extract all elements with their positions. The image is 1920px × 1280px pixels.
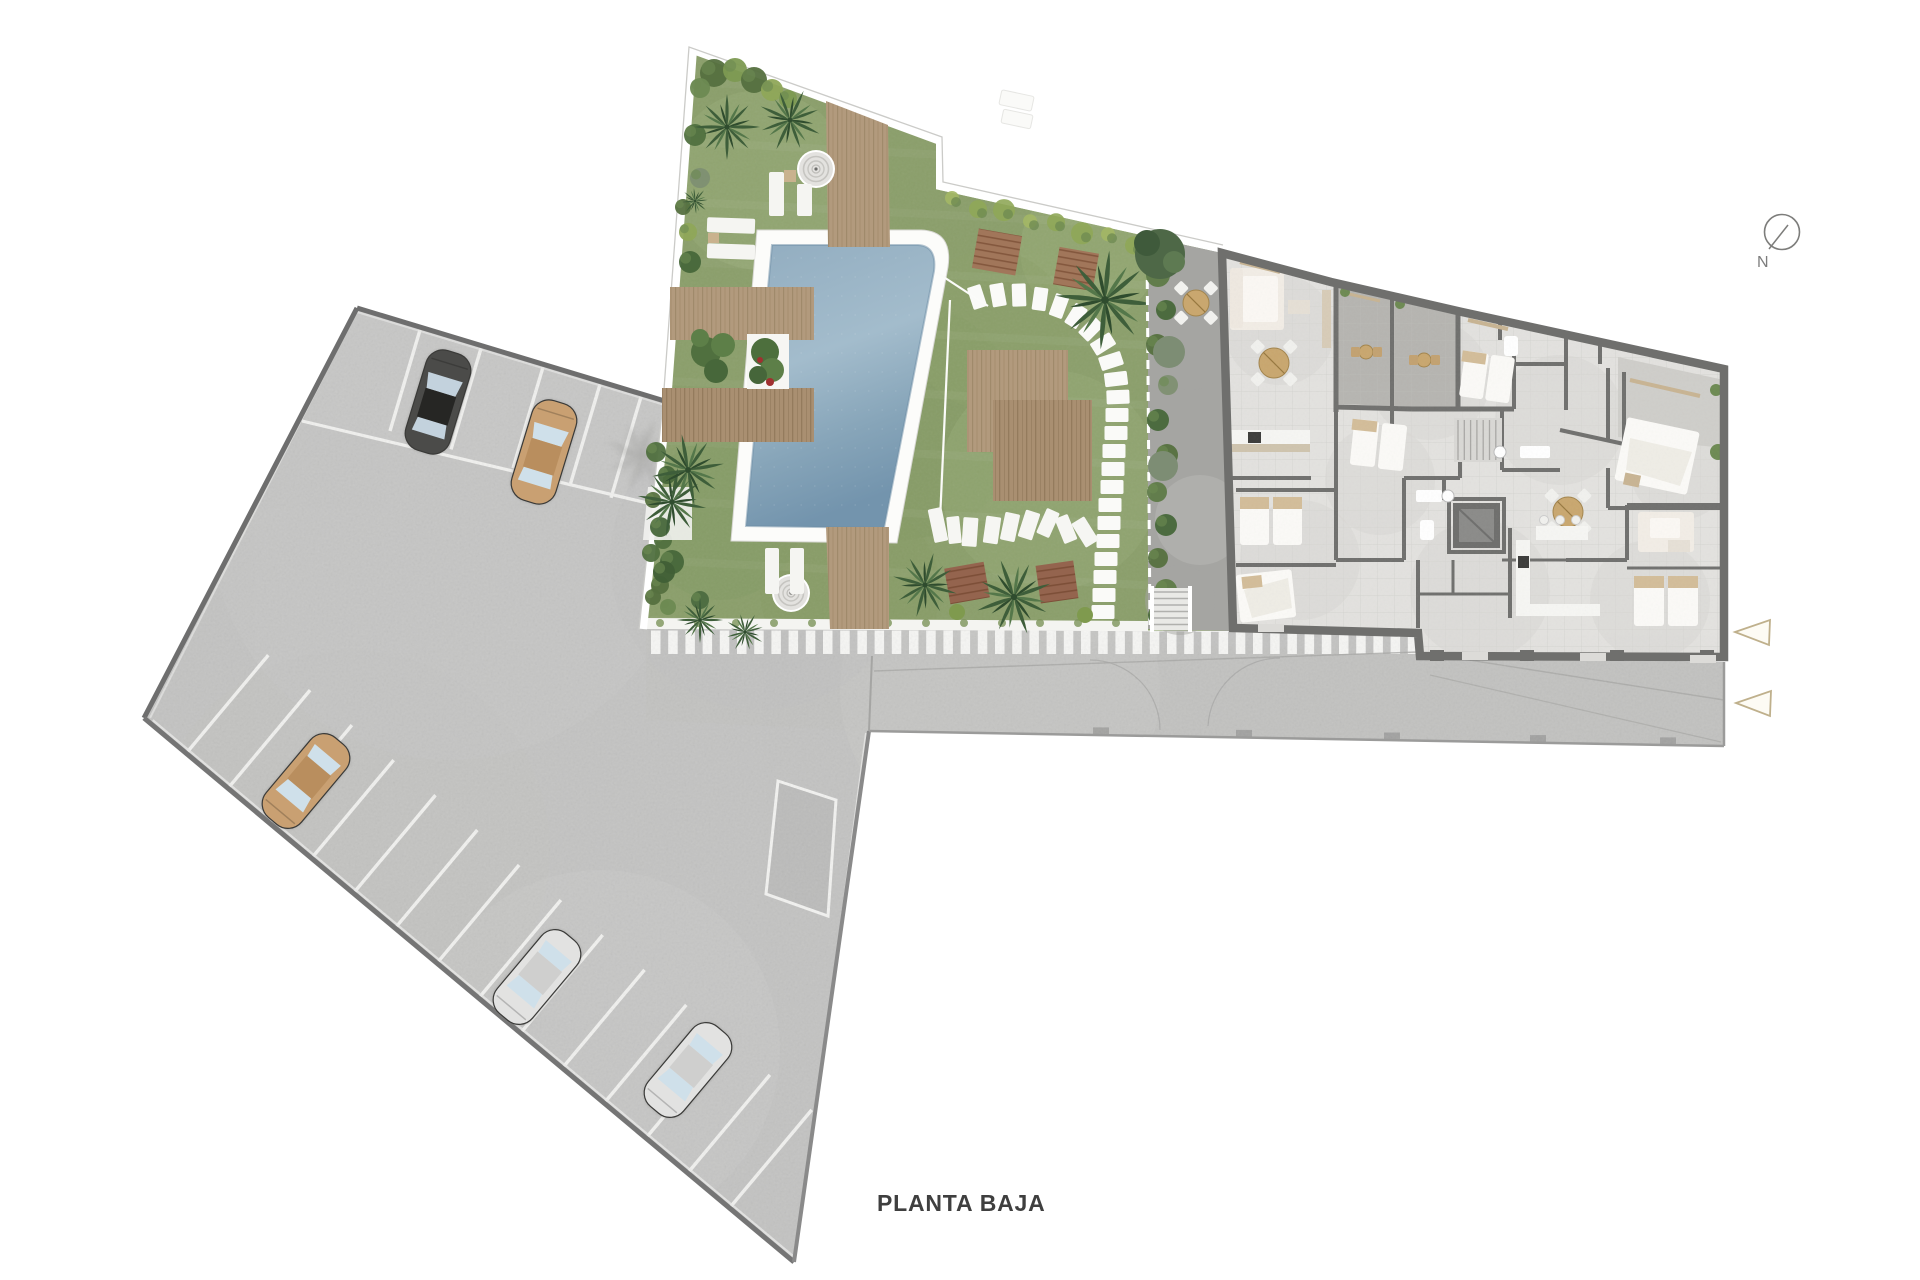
svg-text:PLANTA BAJA: PLANTA BAJA [877,1190,1046,1216]
svg-text:N: N [1757,254,1769,271]
